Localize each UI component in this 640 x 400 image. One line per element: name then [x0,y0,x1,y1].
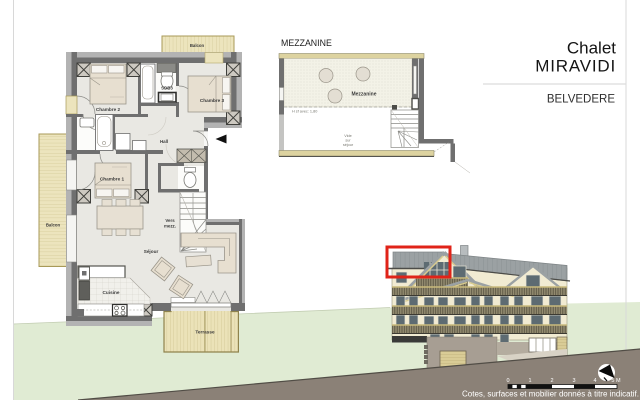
svg-text:Hall: Hall [160,139,168,144]
svg-text:Chambre 1: Chambre 1 [100,177,125,182]
svg-text:Cuisine: Cuisine [103,290,120,295]
svg-text:3: 3 [572,378,575,384]
svg-text:sur: sur [345,139,351,143]
svg-text:MEZZANINE: MEZZANINE [281,38,332,48]
svg-text:1: 1 [528,378,531,384]
svg-text:Balcon: Balcon [190,43,205,48]
svg-text:Vers: Vers [165,218,175,223]
svg-text:Terrasse: Terrasse [195,330,215,335]
svg-text:Chalet: Chalet [567,39,616,58]
svg-text:Vide: Vide [344,134,352,138]
svg-text:Balcon: Balcon [46,223,61,228]
svg-text:SDB3: SDB3 [161,86,173,91]
svg-text:Cotes, surfaces et mobilier do: Cotes, surfaces et mobilier donnés à tit… [462,390,639,399]
svg-text:BELVEDERE: BELVEDERE [547,94,616,106]
svg-text:mezz.: mezz. [164,224,176,229]
svg-text:4: 4 [593,378,596,384]
svg-text:MIRAVIDI: MIRAVIDI [535,57,616,76]
svg-text:séjour: séjour [343,143,354,147]
svg-text:2: 2 [550,378,553,384]
svg-text:Séjour: Séjour [144,249,159,254]
svg-text:Chambre 3: Chambre 3 [200,98,225,103]
svg-text:Mezzanine: Mezzanine [351,92,376,98]
svg-text:5 M: 5 M [611,378,621,384]
svg-text:Chambre 2: Chambre 2 [96,107,121,112]
svg-text:0: 0 [506,378,509,384]
svg-text:H sf avec: 1,80: H sf avec: 1,80 [292,110,317,114]
